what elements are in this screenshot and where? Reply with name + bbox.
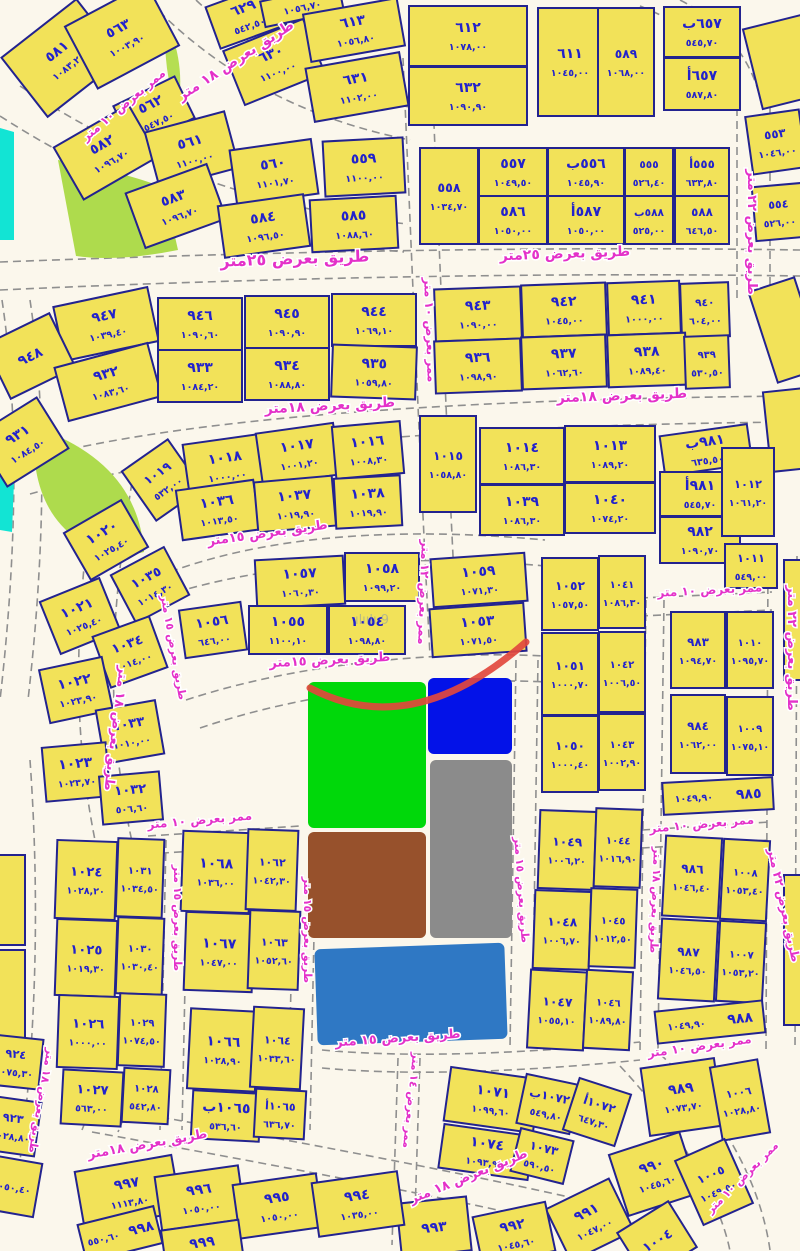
parcel-number: ٦١١	[557, 46, 583, 62]
parcel-area: ١٠٣٠,٤٠	[120, 961, 159, 973]
parcel-area: ١٠٨٩,٨٠	[588, 1015, 627, 1028]
parcel-shape	[230, 139, 319, 205]
parcel-number: ١٠٥٥	[271, 614, 305, 630]
parcel-shape	[480, 428, 564, 484]
parcel-١٠٠٧[interactable]: ١٠٠٧١٠٥٣,٢٠	[716, 921, 766, 1003]
parcel-number: ٥٥٧	[500, 156, 526, 172]
parcel-area: ١٠٦٨,٠٠	[607, 68, 645, 79]
parcel-٦٥٧أ[interactable]: ٦٥٧أ٥٨٧,٨٠	[664, 58, 740, 110]
parcel-١٠٤٩[interactable]: ١٠٤٩١٠٠٦,٢٠	[538, 810, 597, 890]
parcel-١٠٥٩[interactable]: ١٠٥٩١٠٧١,٣٠	[430, 553, 527, 607]
parcel-٦٥٧ب[interactable]: ٦٥٧ب٥٤٥,٧٠	[664, 7, 740, 57]
parcel-shape	[542, 558, 598, 630]
parcel-١٠٦٦[interactable]: ١٠٦٦١٠٢٨,٩٠	[187, 1008, 259, 1091]
parcel-١٠٠٩[interactable]: ١٠٠٩١٠٧٥,١٠	[727, 697, 773, 775]
parcel-area: ١٠٩٨,٩٠	[459, 371, 498, 383]
street-label: طريق بعرض ١٥ متر	[171, 864, 184, 971]
parcel-shape	[434, 339, 522, 394]
parcel-area: ١٠٨٤,٢٠	[181, 382, 219, 393]
parcel-shape	[565, 483, 655, 533]
parcel-number: ٩٣٣	[187, 360, 213, 376]
parcel-area: ١٠٠٦,٥٠	[603, 678, 641, 689]
parcel-number: ١٠٢٣	[58, 755, 94, 774]
parcel-number: ٩٢٣	[2, 1110, 25, 1127]
parcel-٥٥٨[interactable]: ٥٥٨١٠٣٤,٧٠	[420, 148, 478, 244]
parcel-area: ١١٠٠,٠٠	[345, 172, 384, 185]
parcel-area: ١٠٤٥,٩٠	[567, 178, 605, 189]
parcel-number: ١٠١٠	[738, 638, 763, 649]
parcel-shape	[745, 110, 800, 175]
parcel-shape	[332, 421, 404, 479]
parcel-number: ١٠٦٥ب	[202, 1099, 251, 1118]
parcel-area: ١٠٩٠,٩٠	[449, 102, 487, 113]
parcel-١٠٤٠[interactable]: ١٠٤٠١٠٧٤,٢٠	[565, 483, 655, 533]
parcel-number: ٩٣٧	[551, 346, 578, 363]
parcel-٦٣٢[interactable]: ٦٣٢١٠٩٠,٩٠	[409, 67, 527, 125]
parcel-number: ١٠٣٢	[114, 782, 147, 800]
street-label: طريق بعرض ٢٢ متر	[744, 168, 759, 295]
parcel-number: ١٠٠٨	[733, 867, 759, 879]
parcel-number: ٥٥٥أ	[689, 156, 715, 171]
parcel-shape	[727, 612, 773, 688]
parcel-shape	[583, 970, 633, 1050]
parcel-area: ١٠١٩,٩٠	[349, 507, 388, 520]
parcel-number: ١٠٤١	[610, 580, 635, 591]
parcel-shape	[331, 345, 417, 400]
parcel-number: ٩٣٤	[274, 358, 300, 374]
parcel-٥٦٠[interactable]: ٥٦٠١١٠١,٧٠	[230, 139, 319, 205]
parcel-١٠٦٨[interactable]: ١٠٦٨١٠٣٦,٠٠	[181, 831, 252, 913]
parcel-١٠١٢[interactable]: ١٠١٢١٠٦١,٢٠	[722, 448, 774, 536]
parcel-shape	[527, 970, 587, 1051]
parcel-number: ١٠١٦	[350, 433, 386, 452]
parcel-area: ١٠٠٢,٩٠	[603, 758, 641, 769]
parcel-number: ١٠٥٧	[282, 565, 317, 583]
parcel-area: ١٠٤٢,٣٠	[252, 875, 291, 887]
parcel-٩٤٣[interactable]: ٩٤٣١٠٩٠,٠٠	[434, 287, 522, 342]
parcel-٥٨٧أ[interactable]: ٥٨٧أ١٠٥٠,٠٠	[548, 196, 624, 244]
parcel-number: ٥٨٥	[340, 207, 366, 224]
parcel-area: ١٠٥٣,٢٠	[721, 967, 760, 980]
parcel-shape	[312, 1171, 405, 1236]
parcel-٩٢٤[interactable]: ٩٢٤١٠٧٥,٣٠	[0, 1034, 43, 1089]
parcel-shape	[664, 58, 740, 110]
parcel-area: ١٠٥٧,٥٠	[551, 600, 589, 611]
parcel-١٠٤٨[interactable]: ١٠٤٨١٠٠٦,٧٠	[533, 890, 592, 970]
parcel-area: ١٠٨٦,٣٠	[503, 462, 541, 473]
parcel-٩٩٤[interactable]: ٩٩٤١٠٣٥,٠٠	[312, 1171, 405, 1236]
parcel-١٠١٤[interactable]: ١٠١٤١٠٨٦,٣٠	[480, 428, 564, 484]
parcel-number: ٦٥٧ب	[682, 16, 722, 32]
parcel-٩٣٦[interactable]: ٩٣٦١٠٩٨,٩٠	[434, 339, 522, 394]
parcel-shape	[55, 840, 118, 920]
parcel-٥٥٣[interactable]: ٥٥٣١٠٤٦,٠٠	[745, 110, 800, 175]
parcel-area: ١٠٥٠,٠٠	[494, 226, 532, 237]
parcel-number: ٩٨١أ	[685, 476, 715, 494]
parcel-number: ٥٥٤	[768, 197, 789, 212]
parcel-shape	[538, 8, 602, 116]
parcel-٩٤٢[interactable]: ٩٤٢١٠٤٥,٠٠	[521, 283, 607, 338]
parcel-٩٣٣[interactable]: ٩٣٣١٠٨٤,٢٠	[158, 350, 242, 402]
parcel-٦١١[interactable]: ٦١١١٠٤٥,٠٠	[538, 8, 602, 116]
parcel-number: ٩٣٦	[465, 350, 492, 367]
parcel-٩٣٩[interactable]: ٩٣٩٥٣٠,٥٠	[684, 335, 730, 389]
parcel-٥٥٧[interactable]: ٥٥٧١٠٤٩,٥٠	[479, 148, 547, 196]
parcel-number: ٩٤٠	[695, 297, 715, 310]
parcel-area: ٥٤٢,٨٠	[129, 1101, 162, 1114]
parcel-area: ١٠٠٠,٠٠	[625, 313, 664, 325]
parcel-area: ٥٣٠,٥٠	[691, 367, 724, 379]
parcel-١٠٦٥أ[interactable]: ١٠٦٥أ٦٣٦,٧٠	[254, 1089, 306, 1140]
parcel-number: ٩٨٧	[677, 944, 701, 959]
parcel-٩٣٨[interactable]: ٩٣٨١٠٨٩,٤٠	[607, 333, 687, 388]
parcel-shape	[542, 716, 598, 792]
parcel-number: ١٠٣٩	[505, 494, 540, 510]
parcel-shape	[245, 296, 329, 348]
parcel-number: ١٠٦٧	[202, 935, 237, 952]
parcel-shape	[720, 839, 770, 921]
parcel-area: ٥٢٦,٤٠	[633, 178, 666, 189]
parcel-number: ٩٨٨	[726, 1009, 754, 1028]
parcel-area: ١٠٨٨,٦٠	[335, 229, 374, 242]
parcel-shape	[684, 335, 730, 389]
parcel-١٠١٠[interactable]: ١٠١٠١٠٩٥,٧٠	[727, 612, 773, 688]
parcel-area: ١٠٥٨,٨٠	[429, 470, 467, 481]
parcel-area: ١٠٦٠,٣٠	[281, 587, 320, 600]
parcel-number: ٩٩٩	[188, 1233, 216, 1251]
parcel-number: ٥٨٨	[691, 205, 713, 219]
parcel-number: ١٠٤٨	[547, 914, 578, 929]
parcel-١٠٢٦[interactable]: ١٠٢٦١٠٠٠,٠٠	[57, 995, 119, 1069]
parcel-٩٣٧[interactable]: ٩٣٧١٠٦٢,٦٠	[521, 335, 607, 390]
parcel-١٠٣٩[interactable]: ١٠٣٩١٠٨٦,٣٠	[480, 485, 564, 535]
parcel-number: ٥٥٨	[437, 181, 461, 196]
parcel-٥٨٨[interactable]: ٥٨٨٦٤٦,٥٠	[675, 196, 729, 244]
parcel-number: ١٠٢٥	[70, 942, 103, 958]
parcel-shape	[332, 294, 416, 346]
parcel-shape	[420, 148, 478, 244]
parcel-shape	[233, 1173, 324, 1238]
parcel-number: ١٠٤٣	[610, 740, 636, 751]
parcel-٩٤٤[interactable]: ٩٤٤١٠٦٩,١٠	[332, 294, 416, 346]
parcel-area: ١٠٤٩,٩٠	[674, 792, 713, 805]
parcel-١٠٢٧[interactable]: ١٠٢٧٥٦٣,٠٠	[61, 1069, 124, 1126]
parcel-area: ١٠٦٢,٦٠	[545, 367, 584, 379]
parcel-area: ١٠٩٠,٦٠	[181, 330, 219, 341]
parcel-١٠٣٠[interactable]: ١٠٣٠١٠٣٠,٤٠	[116, 917, 165, 995]
parcel[interactable]	[0, 950, 25, 1040]
parcel-number: ١٠٥١	[555, 659, 585, 673]
parcel-area: ١٠٦٢,٠٠	[679, 740, 717, 751]
parcel-number: ٩٨٦	[681, 861, 705, 876]
parcel-number: ١٠٤٤	[606, 836, 631, 848]
parcel-number: ١٠٥٩	[461, 563, 497, 581]
parcel-area: ١٠٠٠,٠٠	[68, 1037, 107, 1049]
parcel-shape	[0, 1034, 43, 1089]
zone-gray[interactable]	[430, 760, 512, 938]
parcel-shape	[598, 8, 654, 116]
parcel-٥٨٩[interactable]: ٥٨٩١٠٦٨,٠٠	[598, 8, 654, 116]
parcel-١٠٢٩[interactable]: ١٠٢٩١٠٧٤,٥٠	[118, 993, 166, 1067]
parcel-number: ٥٥٩	[350, 150, 377, 167]
parcel-١٠٤٤[interactable]: ١٠٤٤١٠١٦,٩٠	[594, 808, 643, 888]
parcel-number: ٩٤٥	[274, 306, 300, 322]
parcel-area: ١٠٣٤,٧٠	[430, 202, 468, 213]
parcel-shape	[323, 137, 406, 196]
parcel-shape	[533, 890, 592, 970]
parcel-١٠٤٧[interactable]: ١٠٤٧١٠٥٥,١٠	[527, 970, 587, 1051]
parcel-number: ١٠٦٦	[206, 1033, 241, 1051]
parcel-shape	[409, 67, 527, 125]
parcel-area: ١٠٥٣,٤٠	[725, 885, 764, 898]
parcel-area: ٥٨٧,٨٠	[686, 90, 719, 101]
parcel-number: ١٠٢٤	[70, 864, 103, 880]
parcel-number: ٥٨٧أ	[571, 202, 602, 220]
parcel-number: ١٠٠٩	[738, 724, 763, 735]
parcel-shape	[565, 426, 655, 482]
parcel-area: ١٠٩٤,٧٠	[679, 656, 717, 667]
parcel-shape	[716, 921, 766, 1003]
parcel-area: ١٠٩٠,٠٠	[459, 319, 498, 331]
park-cyan-strip-top	[0, 128, 14, 240]
parcel-shape	[179, 602, 247, 658]
parcel-٩٤٠[interactable]: ٩٤٠٦٠٤,٠٠	[680, 282, 730, 338]
parcel-١٠١٥[interactable]: ١٠١٥١٠٥٨,٨٠	[420, 416, 476, 512]
parcel-shape	[607, 333, 687, 388]
parcel-area: ٥٣٦,٦٠	[209, 1121, 242, 1134]
parcel-number: ١٠٦٤	[264, 1033, 292, 1047]
watermark: ılıılı 9	[355, 613, 389, 628]
parcel-shape	[0, 950, 25, 1040]
parcel-number: ٥٥٦ب	[566, 156, 606, 172]
parcel-shape	[722, 448, 774, 536]
parcel-١٠٦٧[interactable]: ١٠٦٧١٠٤٧,٠٠	[184, 912, 255, 992]
parcel-number: ١٠٦٥أ	[265, 1098, 297, 1114]
parcel-١٠٤١[interactable]: ١٠٤١١٠٨٦,٣٠	[599, 556, 645, 628]
parcel-٥٨٦[interactable]: ٥٨٦١٠٥٠,٠٠	[479, 196, 547, 244]
parcel-area: ٦٣٣,٨٠	[686, 178, 719, 189]
parcel-number: ٩٨٤	[687, 719, 709, 733]
parcel-shape	[680, 282, 730, 338]
parcel-٩٨٥[interactable]: ٩٨٥١٠٤٩,٩٠	[662, 777, 774, 815]
parcel-shape	[184, 912, 255, 992]
parcel-area: ١٠٨٦,٣٠	[503, 516, 541, 527]
parcel-shape	[521, 283, 607, 338]
parcel-number: ١٠١٢	[734, 477, 762, 491]
parcel-area: ١٠٢٨,٢٠	[66, 885, 105, 897]
parcel[interactable]	[0, 855, 25, 945]
parcel-shape	[662, 836, 722, 919]
parcel-area: ١٠٥٥,١٠	[537, 1015, 576, 1028]
parcel-shape	[55, 919, 118, 997]
parcel-shape	[158, 350, 242, 402]
parcel-area: ١٠٧٨,٠٠	[449, 42, 487, 53]
parcel-area: ١٠٩٥,٧٠	[731, 656, 769, 667]
parcel-١٠٥٨[interactable]: ١٠٥٨١٠٩٩,٢٠	[345, 553, 419, 601]
street-label: طريق بعرض ٢٢ متر	[784, 584, 799, 711]
parcel-area: ٥٦٣,٠٠	[75, 1103, 108, 1116]
parcel-area: ١٠٣٣,٦٠	[257, 1053, 296, 1066]
parcel-١٠٢٨[interactable]: ١٠٢٨٥٤٢,٨٠	[122, 1068, 171, 1124]
parcel-number: ١٠٢٧	[76, 1082, 109, 1099]
parcel-area: ١٠٧٥,١٠	[731, 742, 769, 753]
parcel-٩٣٥[interactable]: ٩٣٥١٠٥٩,٨٠	[331, 345, 417, 400]
parcel-number: ٩٣٨	[634, 344, 661, 361]
parcel-shape	[658, 919, 718, 1002]
parcel-shape	[599, 632, 645, 712]
parcel-area: ١٠١٦,٩٠	[598, 853, 637, 865]
parcel-shape	[0, 855, 25, 945]
parcel-١٠٣٨[interactable]: ١٠٣٨١٠١٩,٩٠	[334, 475, 403, 528]
parcel-area: ١٠٦٩,١٠	[355, 326, 393, 337]
parcel-٩٤٥[interactable]: ٩٤٥١٠٩٠,٩٠	[245, 296, 329, 348]
parcel-٥٨٥[interactable]: ٥٨٥١٠٨٨,٦٠	[310, 196, 399, 252]
parcel-area: ١٠٩٨,٨٠	[348, 636, 386, 647]
parcel-٩٨٤[interactable]: ٩٨٤١٠٦٢,٠٠	[671, 695, 725, 773]
zone-brown[interactable]	[308, 832, 426, 938]
parcel-١٠٠٨[interactable]: ١٠٠٨١٠٥٣,٤٠	[720, 839, 770, 921]
parcel-١٠٥١[interactable]: ١٠٥١١٠٠٠,٧٠	[542, 633, 598, 715]
parcel-١٠٤٣[interactable]: ١٠٤٣١٠٠٢,٩٠	[599, 714, 645, 790]
parcel-number: ١٠١٣	[593, 438, 628, 454]
parcel-number: ١٠٥٨	[365, 561, 400, 577]
parcel-٩٤١[interactable]: ٩٤١١٠٠٠,٠٠	[607, 281, 681, 335]
parcel-٥٥٥أ[interactable]: ٥٥٥أ٦٣٣,٨٠	[675, 148, 729, 196]
parcel-number: ١٠٥٢	[555, 579, 586, 593]
parcel-area: ٦٤٦,٥٠	[686, 226, 719, 237]
parcel-٩٣٤[interactable]: ٩٣٤١٠٨٨,٨٠	[245, 348, 329, 400]
parcel-٥٨٨ب[interactable]: ٥٨٨ب٥٢٥,٠٠	[625, 196, 673, 244]
parcel-shape	[181, 831, 252, 913]
parcel-shape	[589, 888, 638, 968]
parcel-shape	[187, 1008, 259, 1091]
parcel-area: ١٠٠٠,٤٠	[551, 760, 589, 771]
parcel-shape	[310, 196, 399, 252]
parcel-area: ١٠٤٥,٠٠	[551, 68, 589, 79]
parcel-area: ١٠١٩,٣٠	[66, 963, 105, 975]
parcel-area: ١٠٩٠,٩٠	[268, 328, 306, 339]
parcel-١٠٥٠[interactable]: ١٠٥٠١٠٠٠,٤٠	[542, 716, 598, 792]
parcel-shape	[664, 7, 740, 57]
map-canvas[interactable]: ٥٨١١٠٨٣,٢٠٥٦٣١٠٠٣,٩٠٥٦٢٥٤٧,٥٠٥٨٢١٠٩٦,٧٠٥…	[0, 0, 800, 1251]
map-app: ٥٨١١٠٨٣,٢٠٥٦٣١٠٠٣,٩٠٥٦٢٥٤٧,٥٠٥٨٢١٠٩٦,٧٠٥…	[0, 0, 800, 1251]
parcel-area: ١٠٥٠,٠٠	[567, 226, 605, 237]
parcel-number: ٥٨٦	[500, 204, 526, 220]
parcel-٩٨٣[interactable]: ٩٨٣١٠٩٤,٧٠	[671, 612, 725, 688]
parcel-area: ١١٠٠,١٠	[269, 636, 307, 647]
parcel-shape	[57, 995, 119, 1069]
parcel-١٠٥٥[interactable]: ١٠٥٥١١٠٠,١٠	[249, 606, 327, 654]
parcel-area: ١٠٧٤,٥٠	[122, 1035, 161, 1047]
parcel-number: ٩٣٩	[697, 350, 716, 362]
parcel-shape	[594, 808, 643, 888]
parcel-١٠٦٢[interactable]: ١٠٦٢١٠٤٢,٣٠	[246, 829, 299, 911]
parcel-number: ١٠٠٧	[729, 949, 755, 961]
parcel-١٠٦٤[interactable]: ١٠٦٤١٠٣٣,٦٠	[250, 1007, 304, 1090]
parcel-area: ١٠١٢,٥٠	[593, 933, 632, 945]
parcel-٩٨٦[interactable]: ٩٨٦١٠٤٦,٤٠	[662, 836, 722, 919]
parcel-١٠٤٥[interactable]: ١٠٤٥١٠١٢,٥٠	[589, 888, 638, 968]
parcel-area: ١٠٤٦,٥٠	[668, 965, 707, 978]
parcel-١٠٥٧[interactable]: ١٠٥٧١٠٦٠,٣٠	[255, 556, 345, 609]
parcel-shape	[599, 556, 645, 628]
parcel-number: ١٠٣٧	[277, 487, 313, 506]
parcel-shape	[246, 829, 299, 911]
parcel-٩٤٦[interactable]: ٩٤٦١٠٩٠,٦٠	[158, 298, 242, 350]
parcel-shape	[116, 917, 165, 995]
parcel-١٠٥٦[interactable]: ١٠٥٦٦٤٦,٠٠	[179, 602, 247, 658]
parcel-١٠٤٢[interactable]: ١٠٤٢١٠٠٦,٥٠	[599, 632, 645, 712]
parcel-٩٩٣[interactable]: ٩٩٣	[396, 1196, 471, 1251]
parcel-area: ١٠٩٠,٧٠	[681, 546, 719, 557]
parcel-٥٥٥[interactable]: ٥٥٥٥٢٦,٤٠	[625, 148, 673, 196]
parcel-١٠٥٢[interactable]: ١٠٥٢١٠٥٧,٥٠	[542, 558, 598, 630]
parcel-area: ١٠٣٤,٥٠	[120, 883, 159, 895]
parcel-area: ١٠٤٧,٠٠	[199, 957, 238, 969]
parcel-١٠٣١[interactable]: ١٠٣١١٠٣٤,٥٠	[116, 838, 165, 918]
parcel-١٠٦٣[interactable]: ١٠٦٣١٠٥٢,٦٠	[248, 910, 301, 990]
parcel-shape	[245, 348, 329, 400]
parcel-١٠٢٥[interactable]: ١٠٢٥١٠١٩,٣٠	[55, 919, 118, 997]
parcel-number: ١٠٥٣	[460, 613, 496, 631]
parcel-number: ١٠٢٨	[134, 1083, 160, 1095]
parcel-area: ١٠٧٤,٢٠	[591, 514, 629, 525]
parcel-shape	[434, 287, 522, 342]
parcel-number: ٦٥٧أ	[687, 66, 718, 84]
parcel-number: ٩٨٣	[687, 635, 709, 649]
parcel-shape	[599, 714, 645, 790]
parcel-١٠١٣[interactable]: ١٠١٣١٠٨٩,٢٠	[565, 426, 655, 482]
parcel-number: ٥٨٩	[615, 47, 638, 61]
parcel-number: ١٠١١	[737, 551, 765, 565]
parcel-١٠٢٤[interactable]: ١٠٢٤١٠٢٨,٢٠	[55, 840, 118, 920]
parcel-area: ١٠٠٦,٢٠	[547, 855, 586, 867]
zone-blue[interactable]	[428, 678, 512, 754]
parcel-area: ١٠٨٩,٢٠	[591, 460, 629, 471]
parcel-number: ٩٤٣	[465, 298, 492, 315]
parcel-area: ١٠٨٩,٤٠	[628, 365, 667, 377]
parcel-area: ١٠٠٦,٧٠	[542, 935, 581, 947]
parcel-area: ٥٤٥,٧٠	[684, 500, 717, 511]
parcel-shape	[122, 1068, 171, 1124]
parcel-number: ٥٥٥	[639, 159, 658, 171]
parcel-shape	[334, 475, 403, 528]
parcel-number: ٥٨٨ب	[634, 207, 664, 219]
parcel-٥٥٩[interactable]: ٥٥٩١١٠٠,٠٠	[323, 137, 406, 196]
parcel-١٠٥٣[interactable]: ١٠٥٣١٠٧١,٥٠	[429, 603, 526, 657]
parcel-shape	[607, 281, 681, 335]
parcel-٥٥٦ب[interactable]: ٥٥٦ب١٠٤٥,٩٠	[548, 148, 624, 196]
parcel-area: ٥٢٥,٠٠	[633, 226, 666, 237]
parcel-٦١٢[interactable]: ٦١٢١٠٧٨,٠٠	[409, 6, 527, 66]
parcel-shape	[430, 553, 527, 607]
parcel-number: ١٠٤٦	[596, 997, 621, 1009]
parcel-shape	[521, 335, 607, 390]
parcel-number: ١٠٤٢	[610, 660, 636, 671]
parcel-number: ١٠٥٠	[555, 739, 585, 753]
parcel-shape	[61, 1069, 124, 1126]
parcel-١٠١٦[interactable]: ١٠١٦١٠٠٨,٣٠	[332, 421, 404, 479]
parcel-١٠٤٦[interactable]: ١٠٤٦١٠٨٩,٨٠	[583, 970, 633, 1050]
parcel-number: ٩٩٣	[421, 1219, 449, 1238]
parcel-٩٩٥[interactable]: ٩٩٥١٠٥٠,٠٠	[233, 1173, 324, 1238]
parcel-shape	[250, 1007, 304, 1090]
parcel-number: ٩٣٥	[361, 356, 387, 373]
parcel-number: ١٠١٥	[433, 449, 463, 463]
parcel-area: ١٠٥٩,٨٠	[354, 377, 393, 389]
parcel-٩٨٧[interactable]: ٩٨٧١٠٤٦,٥٠	[658, 919, 718, 1002]
parcel-shape	[248, 910, 301, 990]
